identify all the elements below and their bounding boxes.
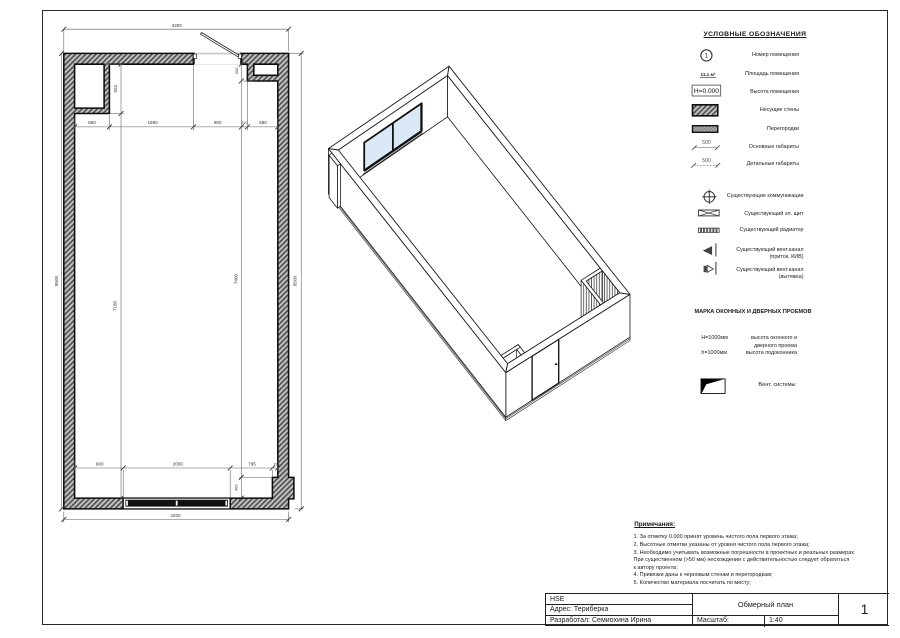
svg-text:2000: 2000 bbox=[173, 462, 184, 467]
svg-text:920: 920 bbox=[113, 85, 118, 93]
svg-text:650: 650 bbox=[88, 120, 96, 125]
svg-text:795: 795 bbox=[248, 462, 256, 467]
svg-text:400: 400 bbox=[234, 484, 239, 491]
svg-text:900: 900 bbox=[96, 462, 104, 467]
svg-text:7400: 7400 bbox=[234, 273, 239, 284]
svg-text:8500: 8500 bbox=[54, 275, 59, 286]
svg-text:900: 900 bbox=[214, 120, 222, 125]
svg-text:580: 580 bbox=[259, 120, 267, 125]
svg-text:4200: 4200 bbox=[172, 23, 183, 28]
svg-text:105: 105 bbox=[273, 463, 279, 467]
svg-text:1560: 1560 bbox=[147, 120, 158, 125]
svg-text:7180: 7180 bbox=[113, 300, 118, 311]
svg-text:4200: 4200 bbox=[170, 513, 181, 518]
svg-text:110: 110 bbox=[241, 120, 248, 125]
svg-text:300: 300 bbox=[234, 67, 239, 74]
svg-text:8500: 8500 bbox=[293, 275, 298, 286]
